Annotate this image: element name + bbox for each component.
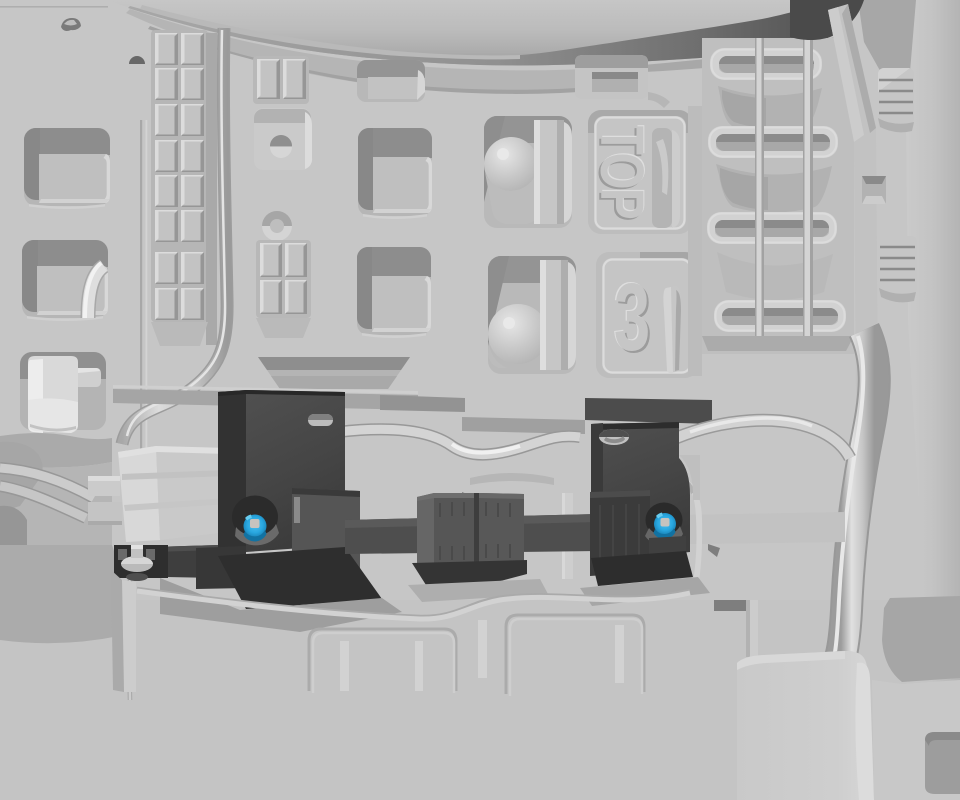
svg-text:3: 3 (614, 265, 650, 371)
svg-text:TOP: TOP (587, 126, 656, 219)
